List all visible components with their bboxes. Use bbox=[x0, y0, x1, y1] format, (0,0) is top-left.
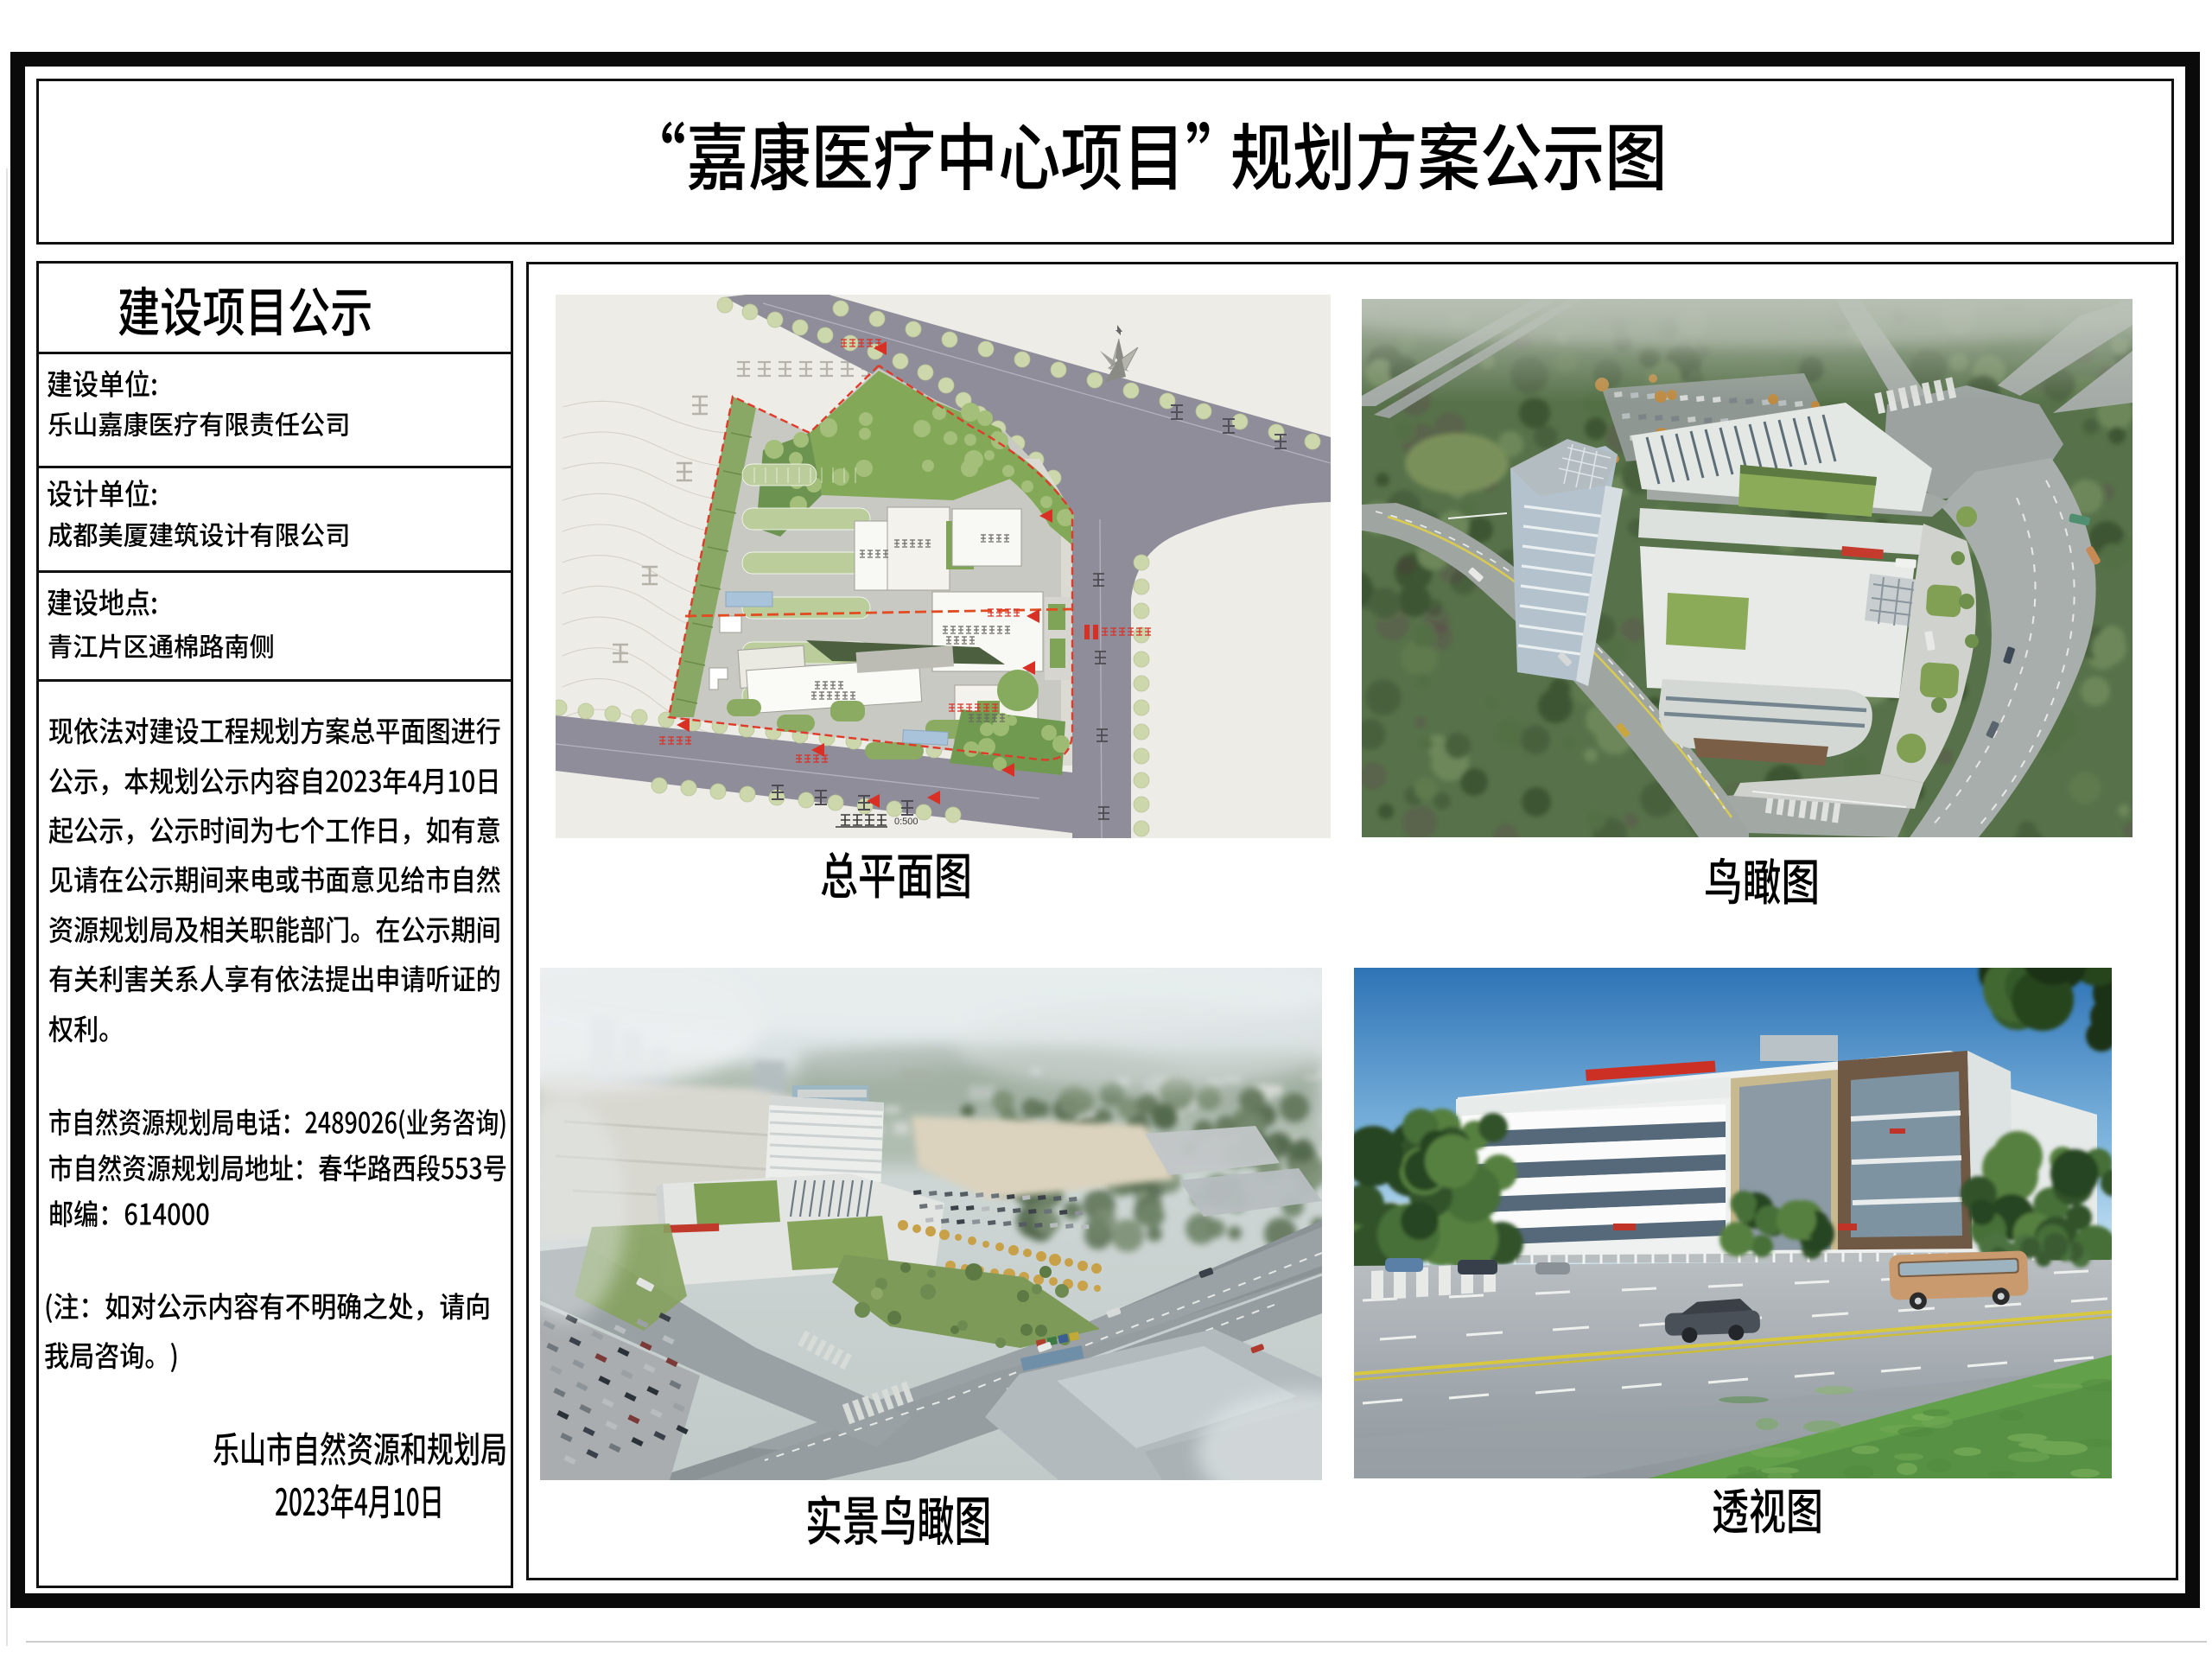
svg-text:0:500: 0:500 bbox=[894, 817, 918, 827]
